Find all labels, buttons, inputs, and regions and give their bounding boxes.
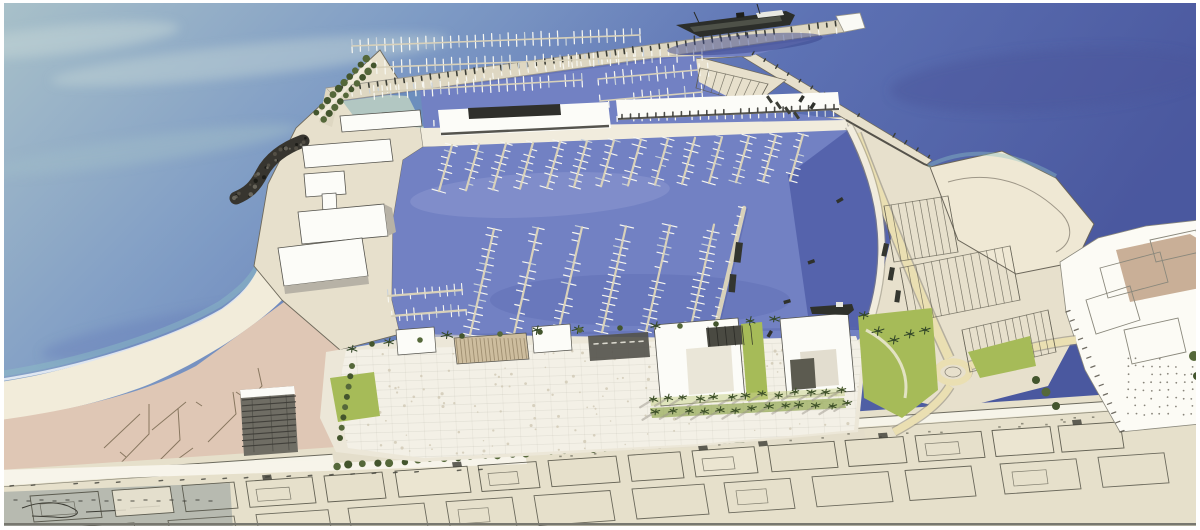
- trellis-terrace: [588, 332, 650, 361]
- border-left: [0, 0, 4, 530]
- bottom-rule: [0, 523, 1200, 526]
- village-building-3: [304, 171, 346, 197]
- border-right: [1196, 0, 1200, 530]
- complex-1-courtyard: [686, 345, 734, 395]
- pavilion-1: [396, 327, 436, 355]
- border-top: [0, 0, 1200, 3]
- tug-wheelhouse: [836, 302, 843, 307]
- border-bottom: [0, 526, 1200, 530]
- cruise-ship-funnel: [736, 12, 744, 18]
- marina-rendering: [0, 0, 1200, 530]
- water-dark-patch: [490, 274, 790, 326]
- roundabout-island: [945, 367, 961, 377]
- complex-2-trellis: [790, 358, 816, 390]
- plaza-west-lawn: [330, 372, 380, 422]
